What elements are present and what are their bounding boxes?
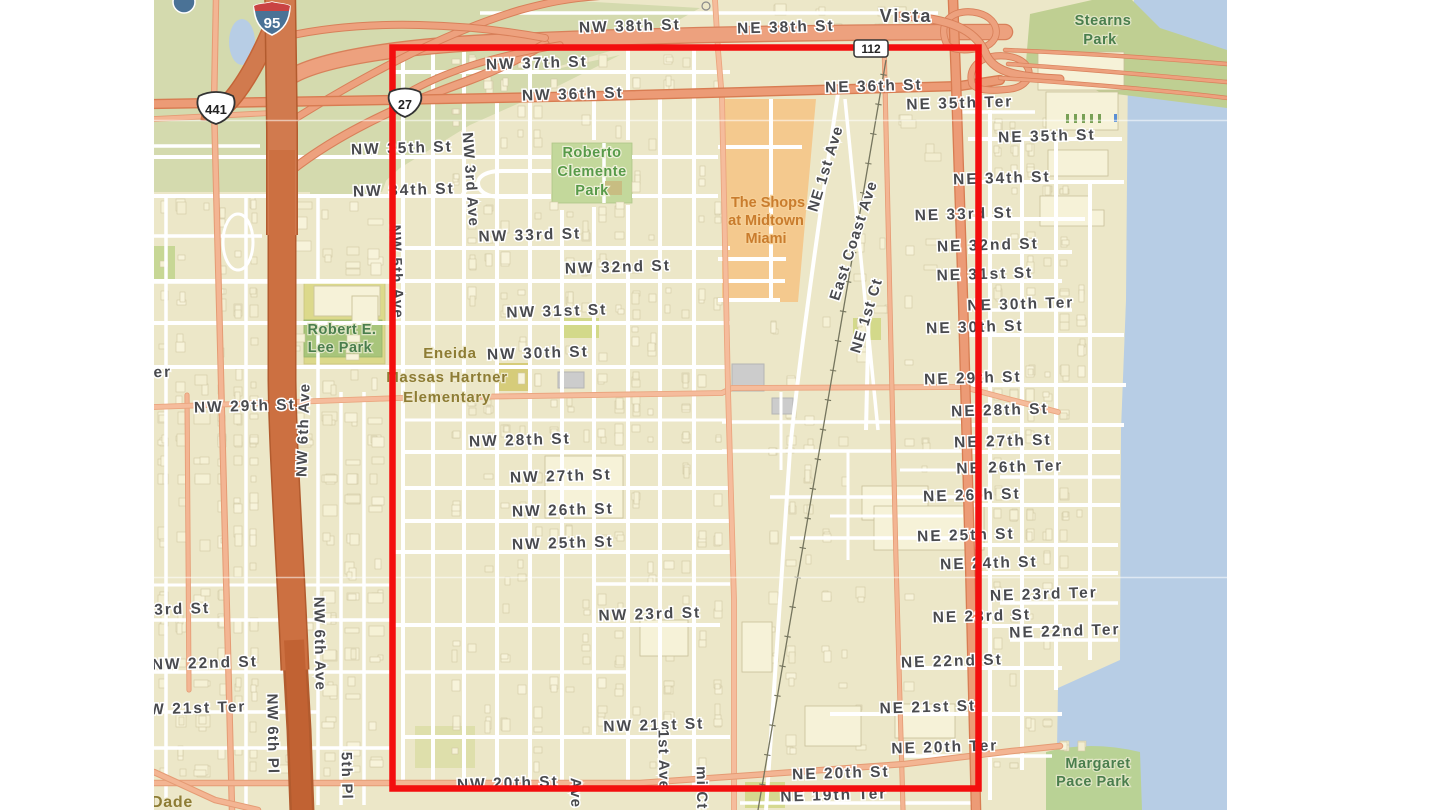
svg-text:Robert E.: Robert E. xyxy=(308,322,377,338)
svg-text:Massas Hartner: Massas Hartner xyxy=(386,369,508,386)
svg-text:NW 33rd St: NW 33rd St xyxy=(478,225,581,245)
svg-text:at Midtown: at Midtown xyxy=(728,213,804,229)
svg-text:441: 441 xyxy=(205,102,227,117)
svg-text:NW 23rd St: NW 23rd St xyxy=(598,604,701,624)
svg-text:NE 35th St: NE 35th St xyxy=(998,126,1096,146)
svg-text:NE 34th St: NE 34th St xyxy=(953,168,1051,188)
svg-text:Clemente: Clemente xyxy=(557,164,626,180)
svg-text:1st Ave: 1st Ave xyxy=(654,729,672,790)
svg-text:Eneida: Eneida xyxy=(423,345,476,362)
svg-text:Stearns: Stearns xyxy=(1075,13,1132,29)
svg-text:NE 26th St: NE 26th St xyxy=(923,485,1021,505)
svg-text:NW 32nd St: NW 32nd St xyxy=(565,257,672,277)
svg-text:NW 28th St: NW 28th St xyxy=(469,430,571,450)
svg-text:NW 6th Ave: NW 6th Ave xyxy=(310,597,329,692)
svg-text:NW 22nd St: NW 22nd St xyxy=(152,653,259,673)
svg-text:NW 35th St: NW 35th St xyxy=(351,138,453,158)
svg-text:NW 25th St: NW 25th St xyxy=(512,533,614,553)
svg-text:NE 23rd St: NE 23rd St xyxy=(932,606,1031,626)
svg-text:NW 30th St: NW 30th St xyxy=(487,343,589,363)
svg-text:Park: Park xyxy=(575,183,609,199)
svg-text:NE 29th St: NE 29th St xyxy=(924,368,1022,388)
svg-text:NW 37th St: NW 37th St xyxy=(486,53,588,73)
svg-text:The Shops: The Shops xyxy=(731,195,805,211)
svg-text:NW 36th St: NW 36th St xyxy=(522,84,624,104)
svg-text:Vista: Vista xyxy=(880,6,933,26)
svg-text:er: er xyxy=(153,364,172,382)
svg-text:Ave: Ave xyxy=(567,777,585,808)
svg-text:Margaret: Margaret xyxy=(1065,756,1130,772)
svg-text:5th Pl: 5th Pl xyxy=(338,752,356,800)
svg-text:NE 36th St: NE 36th St xyxy=(825,76,923,96)
svg-text:NE 33rd St: NE 33rd St xyxy=(914,204,1013,224)
svg-text:NW 27th St: NW 27th St xyxy=(510,466,612,486)
svg-text:NE 28th St: NE 28th St xyxy=(951,400,1049,420)
svg-text:NE 22nd Ter: NE 22nd Ter xyxy=(1009,621,1121,641)
svg-text:NE 32nd St: NE 32nd St xyxy=(937,235,1039,255)
svg-text:112: 112 xyxy=(861,42,881,56)
svg-text:Lee Park: Lee Park xyxy=(308,340,373,356)
svg-text:Elementary: Elementary xyxy=(403,389,491,406)
svg-text:NE 30th Ter: NE 30th Ter xyxy=(967,294,1074,314)
svg-text:Miami: Miami xyxy=(745,231,786,247)
svg-text:Pace Park: Pace Park xyxy=(1056,774,1130,790)
svg-text:NE 30th St: NE 30th St xyxy=(926,317,1024,337)
svg-text:NE 20th St: NE 20th St xyxy=(792,763,890,783)
svg-text:NE 20th Ter: NE 20th Ter xyxy=(891,737,998,757)
svg-text:NW 6th Pl: NW 6th Pl xyxy=(263,693,281,774)
svg-text:NE 24th St: NE 24th St xyxy=(940,553,1038,573)
svg-text:95: 95 xyxy=(264,15,281,32)
svg-text:W 21st Ter: W 21st Ter xyxy=(149,698,247,718)
svg-text:NE 35th Ter: NE 35th Ter xyxy=(906,93,1013,113)
svg-text:Roberto: Roberto xyxy=(562,145,621,161)
svg-text:NW 38th St: NW 38th St xyxy=(579,16,681,36)
svg-text:NW 31st St: NW 31st St xyxy=(506,301,607,321)
svg-text:NW 26th St: NW 26th St xyxy=(512,500,614,520)
svg-text:27: 27 xyxy=(398,98,412,112)
svg-text:NW 21st St: NW 21st St xyxy=(603,715,704,735)
svg-text:NW 29th St: NW 29th St xyxy=(194,396,296,416)
svg-text:NE 38th St: NE 38th St xyxy=(737,17,835,37)
svg-text:Dade: Dade xyxy=(151,794,193,810)
svg-text:NE 22nd St: NE 22nd St xyxy=(901,651,1003,671)
svg-text:Park: Park xyxy=(1083,32,1117,48)
svg-text:NE 23rd Ter: NE 23rd Ter xyxy=(990,584,1098,604)
svg-text:NE 25th St: NE 25th St xyxy=(917,525,1015,545)
svg-text:NW 6th Ave: NW 6th Ave xyxy=(293,382,313,477)
svg-text:NE 26th Ter: NE 26th Ter xyxy=(956,457,1063,477)
svg-text:NE 27th St: NE 27th St xyxy=(954,431,1052,451)
svg-text:NE 31st St: NE 31st St xyxy=(936,264,1033,284)
svg-text:NW 34th St: NW 34th St xyxy=(353,180,455,200)
svg-text:NE 21st St: NE 21st St xyxy=(879,697,976,717)
